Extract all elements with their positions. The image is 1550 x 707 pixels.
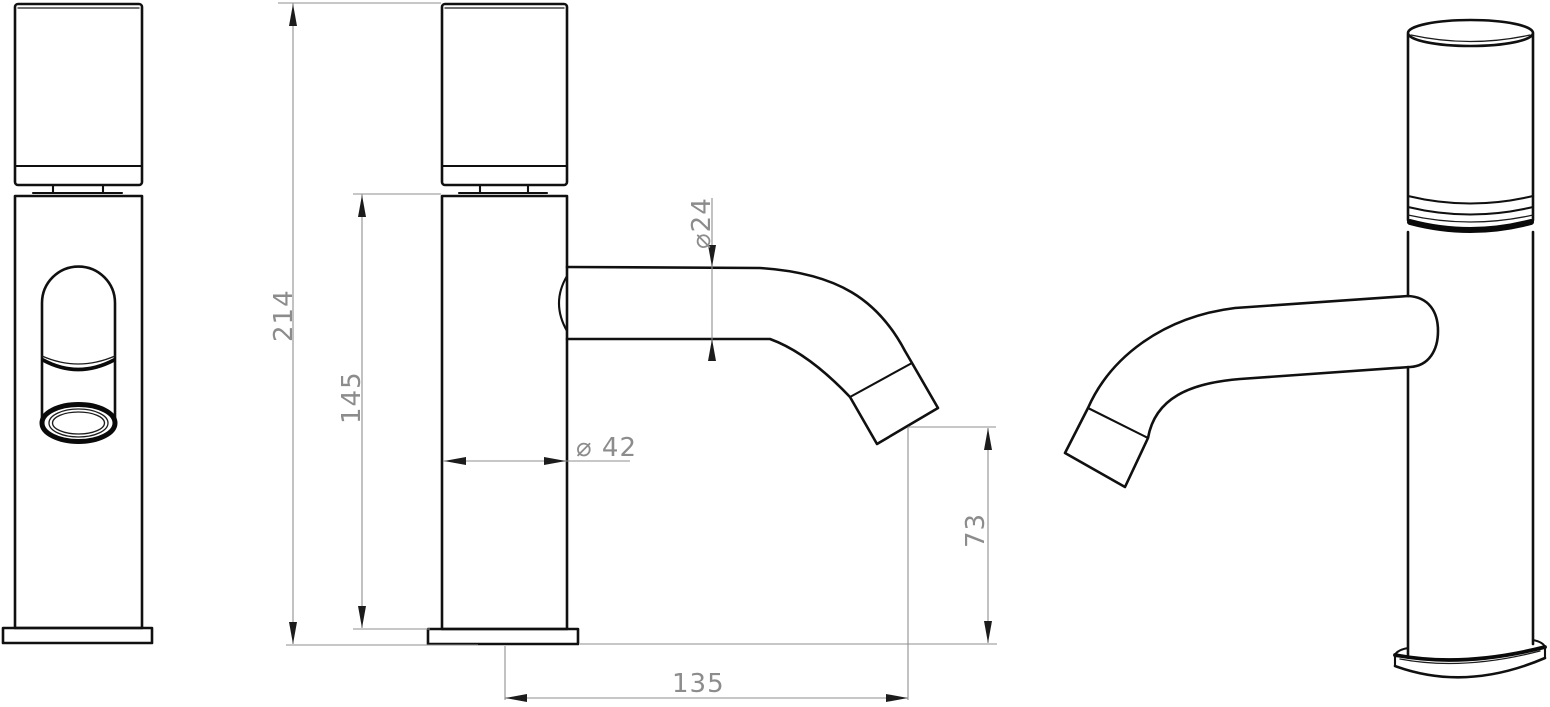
aerator-joint-line [43,360,114,370]
spout-outline [567,267,938,444]
front-view [3,4,152,643]
spout-tip-inner-ring [49,409,108,437]
handle-top-chamfer-arc [1411,35,1530,42]
dim-spout-diameter: ⌀24 [687,197,717,361]
handle-stem [53,186,103,194]
dimension-text: 135 [672,669,725,699]
arrow-up [708,339,716,361]
arrow-down [358,606,366,628]
dim-body-height: 145 [337,194,441,629]
faucet-technical-drawing: 214 145 ⌀24 ⌀ 42 [0,0,1550,707]
body-outline [442,196,567,629]
handle-outline [442,4,567,185]
dimension-text: ⌀ 42 [576,433,637,463]
side-view [428,4,938,644]
handle-stem [480,186,528,194]
arrow-up [984,428,992,450]
spout-aerator-joint-line [850,363,912,397]
arrow-down [289,622,297,644]
base-plate-outline [428,629,578,644]
arrow-down [984,621,992,643]
base-shadow-arc [1395,647,1545,660]
handle-outline [15,4,142,185]
drawing-canvas: 214 145 ⌀24 ⌀ 42 [0,0,1550,707]
arrow-right [544,457,566,465]
dimension-text: 73 [961,513,991,548]
handle-sides [1408,34,1533,220]
dim-spout-reach: 135 [505,427,908,702]
arrow-left [505,694,527,702]
dim-tip-height: 73 [580,427,997,644]
base-plate-outline [3,628,152,643]
dim-overall-height: 214 [269,3,478,645]
arrow-up [289,4,297,26]
spout-aerator-joint-line [1088,408,1148,438]
dimensions: 214 145 ⌀24 ⌀ 42 [269,3,997,702]
arrow-left [444,457,466,465]
arrow-up [358,195,366,217]
spout-outline [1065,296,1438,487]
handle-band-arc-top [1408,196,1533,204]
arrow-right [886,694,908,702]
joint-ring-thin-arc [1408,215,1533,222]
spout-tip-aerator-ring [53,412,105,434]
dimension-text: 214 [269,289,299,342]
perspective-view [1065,20,1545,677]
dimension-text: 145 [337,371,367,424]
handle-band-arc-bottom [1408,207,1533,215]
dim-body-diameter: ⌀ 42 [443,433,637,465]
joint-ring-dark-arc [1410,222,1531,230]
dimension-text: ⌀24 [687,197,717,249]
